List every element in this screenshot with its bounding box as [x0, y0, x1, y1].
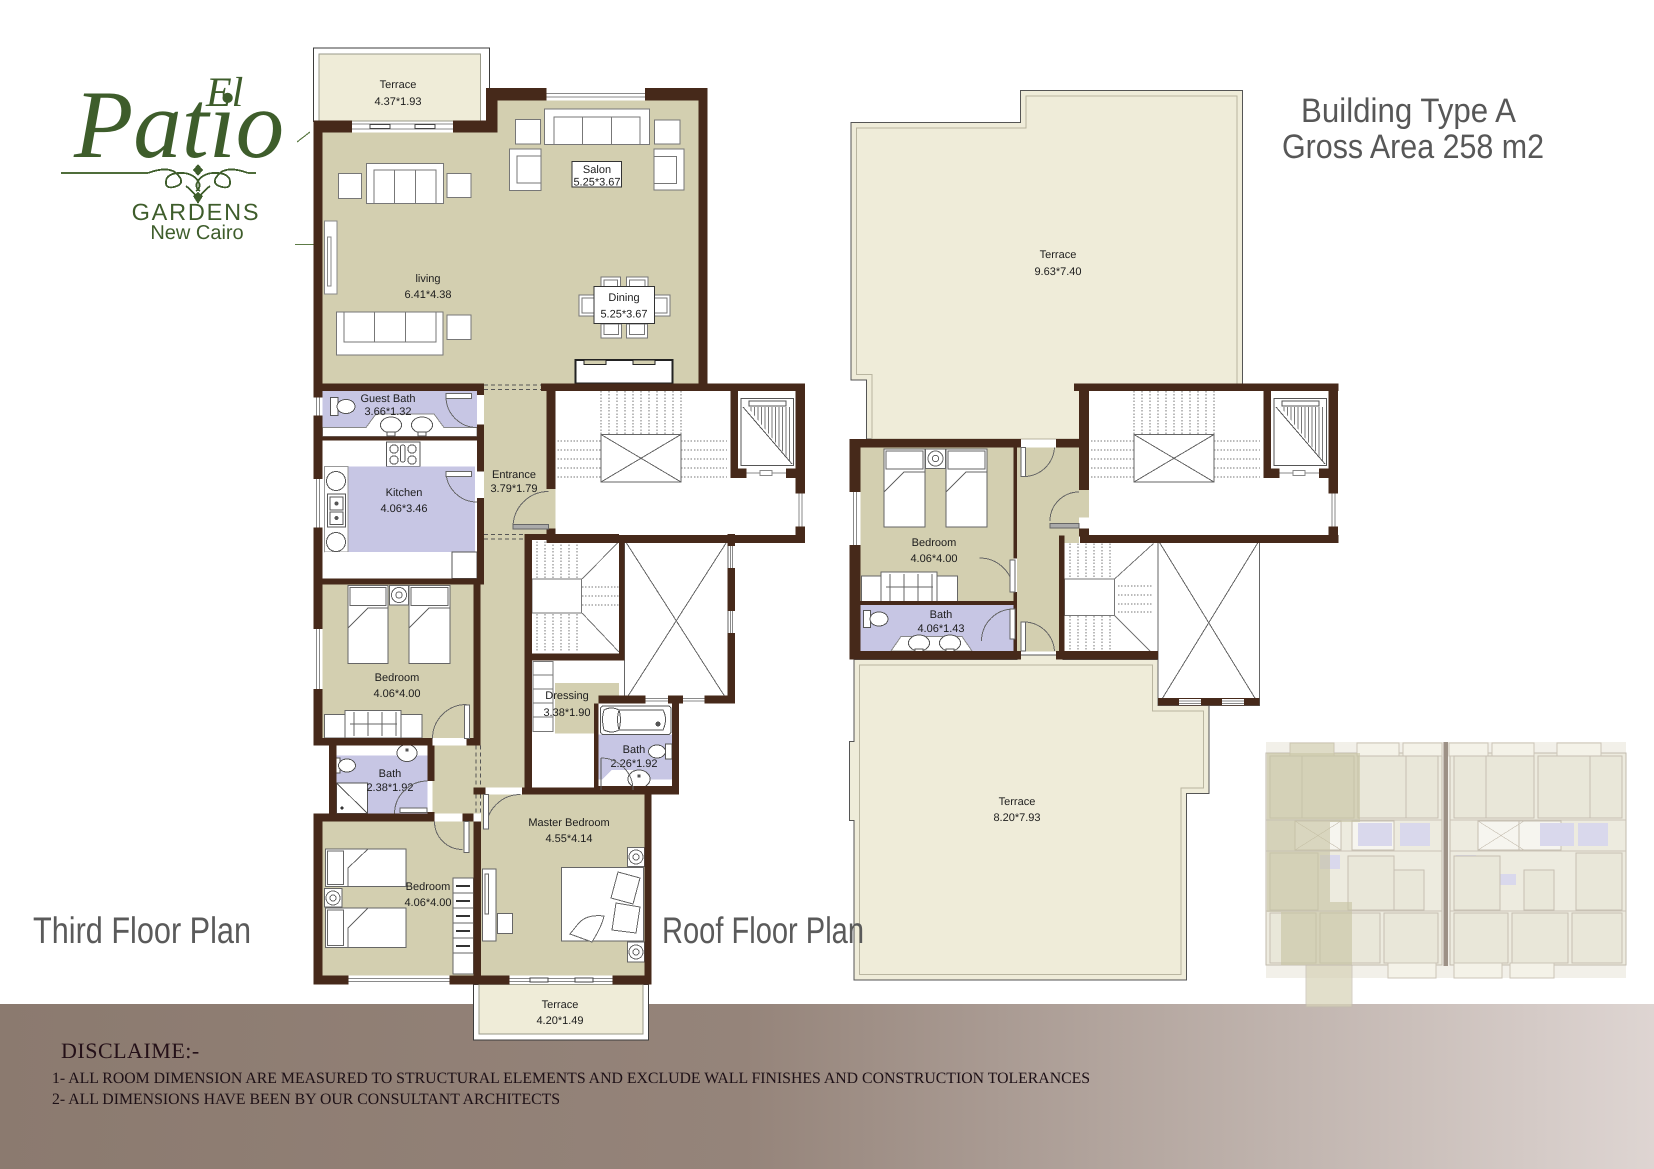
svg-text:Kitchen: Kitchen — [386, 487, 423, 499]
svg-text:4.55*4.14: 4.55*4.14 — [545, 833, 592, 845]
svg-text:5.25*3.67: 5.25*3.67 — [573, 177, 620, 189]
svg-text:Bedroom: Bedroom — [375, 672, 420, 684]
svg-text:Roof Floor Plan: Roof Floor Plan — [662, 910, 864, 951]
svg-text:6.41*4.38: 6.41*4.38 — [404, 289, 451, 301]
svg-text:Dining: Dining — [608, 292, 639, 304]
svg-text:Terrace: Terrace — [1040, 249, 1077, 261]
svg-text:5.25*3.67: 5.25*3.67 — [600, 309, 647, 321]
svg-text:Patio: Patio — [73, 71, 284, 178]
svg-text:4.06*1.43: 4.06*1.43 — [917, 623, 964, 635]
svg-text:Terrace: Terrace — [380, 79, 417, 91]
svg-text:4.06*4.00: 4.06*4.00 — [404, 897, 451, 909]
svg-text:Terrace: Terrace — [542, 999, 579, 1011]
svg-text:DISCLAIME:-: DISCLAIME:- — [61, 1038, 200, 1063]
svg-text:1- ALL ROOM DIMENSION ARE MEAS: 1- ALL ROOM DIMENSION ARE MEASURED TO ST… — [52, 1070, 1090, 1087]
svg-text:3.66*1.32: 3.66*1.32 — [364, 406, 411, 418]
svg-text:4.06*4.00: 4.06*4.00 — [910, 553, 957, 565]
svg-text:Master Bedroom: Master Bedroom — [528, 817, 609, 829]
svg-text:living: living — [415, 273, 440, 285]
svg-text:Guest Bath: Guest Bath — [360, 393, 415, 405]
svg-text:New Cairo: New Cairo — [150, 222, 243, 244]
svg-text:Bedroom: Bedroom — [406, 881, 451, 893]
svg-text:4.20*1.49: 4.20*1.49 — [536, 1015, 583, 1027]
svg-text:Bath: Bath — [930, 609, 953, 621]
svg-text:Bath: Bath — [379, 768, 402, 780]
svg-text:3.38*1.90: 3.38*1.90 — [543, 707, 590, 719]
svg-text:Building Type A: Building Type A — [1301, 92, 1516, 130]
svg-text:Terrace: Terrace — [999, 796, 1036, 808]
svg-text:4.37*1.93: 4.37*1.93 — [374, 96, 421, 108]
svg-text:4.06*3.46: 4.06*3.46 — [380, 503, 427, 515]
svg-text:9.63*7.40: 9.63*7.40 — [1034, 266, 1081, 278]
svg-text:Gross Area 258 m2: Gross Area 258 m2 — [1282, 128, 1544, 166]
svg-text:Bedroom: Bedroom — [912, 537, 957, 549]
svg-text:Salon: Salon — [583, 164, 611, 176]
svg-text:Third Floor Plan: Third Floor Plan — [33, 910, 251, 951]
svg-text:Bath: Bath — [623, 744, 646, 756]
svg-text:3.79*1.79: 3.79*1.79 — [490, 483, 537, 495]
svg-text:4.06*4.00: 4.06*4.00 — [373, 688, 420, 700]
svg-text:Dressing: Dressing — [545, 690, 588, 702]
svg-text:Entrance: Entrance — [492, 469, 536, 481]
svg-text:2.26*1.92: 2.26*1.92 — [610, 758, 657, 770]
svg-text:2- ALL DIMENSIONS HAVE BEEN BY: 2- ALL DIMENSIONS HAVE BEEN BY OUR CONSU… — [52, 1091, 560, 1108]
svg-text:8.20*7.93: 8.20*7.93 — [993, 812, 1040, 824]
